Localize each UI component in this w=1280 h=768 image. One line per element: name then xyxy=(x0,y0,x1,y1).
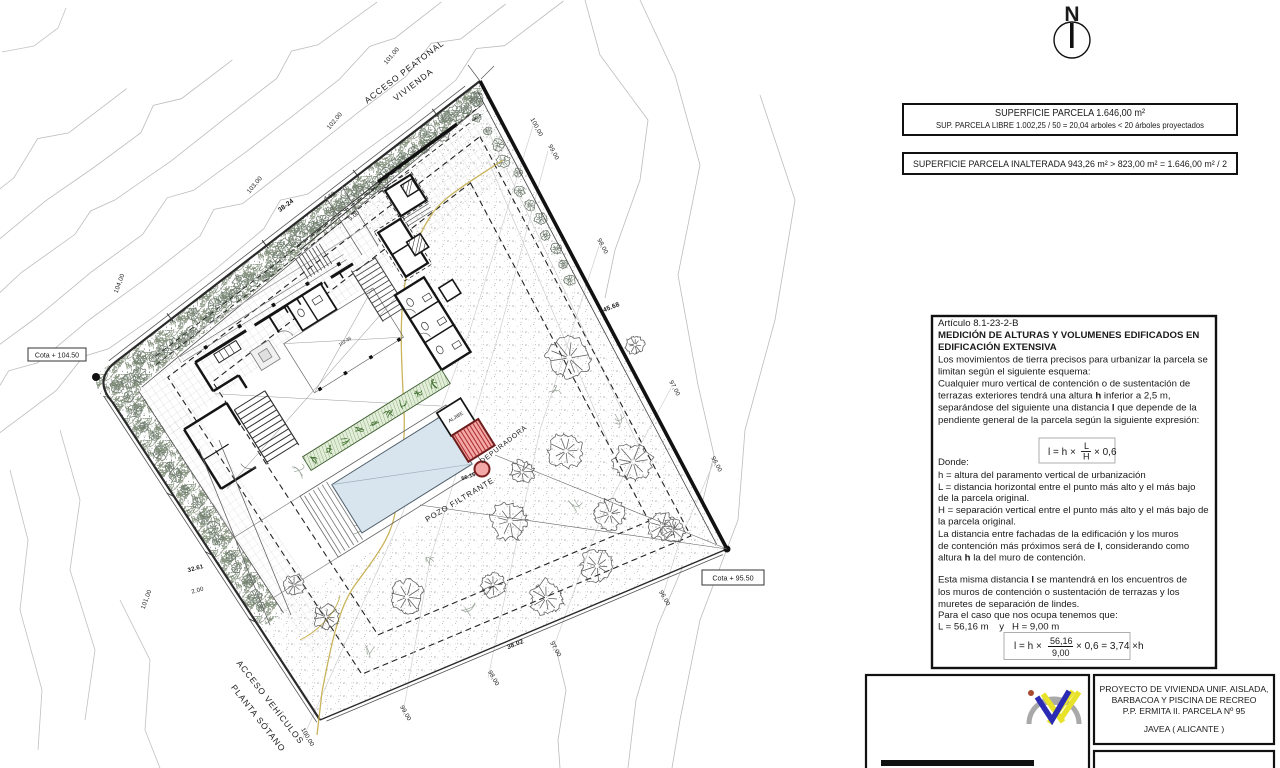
svg-text:N: N xyxy=(1064,3,1079,26)
svg-text:h = altura del paramento verti: h = altura del paramento vertical de urb… xyxy=(938,470,1146,481)
svg-text:de la parcela original.: de la parcela original. xyxy=(938,493,1029,504)
svg-text:los muros de contención o sust: los muros de contención o sustentación d… xyxy=(938,587,1180,598)
svg-text:l = h ×: l = h × xyxy=(1048,447,1076,458)
svg-text:56,16: 56,16 xyxy=(1050,636,1073,646)
svg-text:45.68: 45.68 xyxy=(602,301,621,314)
svg-text:97,00: 97,00 xyxy=(667,379,681,397)
svg-text:separándose del siguiente una: separándose del siguiente una distancia … xyxy=(938,403,1197,414)
svg-text:100,00: 100,00 xyxy=(529,117,545,138)
svg-text:9,00: 9,00 xyxy=(1052,648,1070,658)
svg-text:L: L xyxy=(1084,441,1089,451)
svg-text:38-24: 38-24 xyxy=(277,198,295,214)
svg-text:SUPERFICIE PARCELA 1.646,00 m²: SUPERFICIE PARCELA 1.646,00 m² xyxy=(995,108,1146,119)
svg-text:Cualquier muro vertical de con: Cualquier muro vertical de contención o … xyxy=(938,379,1190,390)
svg-text:97,00: 97,00 xyxy=(548,640,562,658)
svg-text:× 0,6 = 3,74 ×h: × 0,6 = 3,74 ×h xyxy=(1076,641,1144,652)
svg-text:muretes de separación de linde: muretes de separación de lindes. xyxy=(938,599,1079,610)
svg-text:98,00: 98,00 xyxy=(595,237,609,255)
svg-text:96,00: 96,00 xyxy=(657,589,671,607)
svg-text:Cota + 104.50: Cota + 104.50 xyxy=(35,353,79,360)
svg-text:× 0,6: × 0,6 xyxy=(1094,447,1117,458)
svg-text:SUPERFICIE PARCELA INALTERADA: SUPERFICIE PARCELA INALTERADA 943,26 m² … xyxy=(913,159,1227,170)
svg-text:pendiente general de la parcel: pendiente general de la parcela según la… xyxy=(938,415,1199,426)
svg-text:Esta misma distancia l se mant: Esta misma distancia l se mantendrá en l… xyxy=(938,575,1187,586)
svg-text:altura h la del muro de conten: altura h la del muro de contención. xyxy=(938,553,1086,564)
svg-text:102,00: 102,00 xyxy=(326,111,345,131)
svg-text:Cota + 95.50: Cota + 95.50 xyxy=(712,574,753,583)
svg-text:limitan según el siguiente esq: limitan según el siguiente esquema: xyxy=(938,366,1091,377)
svg-text:Artículo 8.1-23-2-B: Artículo 8.1-23-2-B xyxy=(938,318,1019,329)
svg-text:SUP. PARCELA LIBRE 1.002,25 /: SUP. PARCELA LIBRE 1.002,25 / 50 = 20,04… xyxy=(936,120,1204,130)
svg-text:H = separación vertical entre: H = separación vertical entre el punto m… xyxy=(938,505,1209,516)
svg-text:P.P. ERMITA II. PARCELA Nº 95: P.P. ERMITA II. PARCELA Nº 95 xyxy=(1123,706,1246,716)
svg-text:101,00: 101,00 xyxy=(140,589,154,611)
svg-text:101,00: 101,00 xyxy=(383,46,402,66)
svg-text:104,00: 104,00 xyxy=(113,273,127,295)
svg-text:2.00: 2.00 xyxy=(191,586,205,595)
svg-text:de contención más próximos ser: de contención más próximos será de l, co… xyxy=(938,541,1189,552)
svg-text:L = distancia horizontal entre: L = distancia horizontal entre el punto … xyxy=(938,482,1196,493)
svg-text:99,00: 99,00 xyxy=(546,143,560,161)
svg-text:PROYECTO DE VIVIENDA UNIF. AIS: PROYECTO DE VIVIENDA UNIF. AISLADA, xyxy=(1100,684,1269,694)
svg-text:Donde:: Donde: xyxy=(938,457,969,468)
svg-text:l = h ×: l = h × xyxy=(1014,641,1042,652)
svg-text:JAVEA ( ALICANTE ): JAVEA ( ALICANTE ) xyxy=(1144,724,1225,734)
svg-text:terrazas exteriores tendrá una: terrazas exteriores tendrá una altura h … xyxy=(938,391,1171,402)
svg-text:Los movimientos de tierra prec: Los movimientos de tierra precisos para … xyxy=(938,354,1208,365)
svg-text:99,00: 99,00 xyxy=(398,704,412,722)
svg-text:H: H xyxy=(1083,452,1090,462)
svg-text:103,00: 103,00 xyxy=(246,175,265,195)
svg-text:EDIFICACIÓN EXTENSIVA: EDIFICACIÓN EXTENSIVA xyxy=(938,341,1057,353)
svg-text:L = 56,16 m y H = 9,00 m: L = 56,16 m y H = 9,00 m xyxy=(938,622,1059,633)
svg-text:32.61: 32.61 xyxy=(187,564,204,574)
svg-text:Para el caso que nos ocupa ten: Para el caso que nos ocupa tenemos que: xyxy=(938,610,1118,621)
svg-text:La distancia entre fachadas de: La distancia entre fachadas de la edific… xyxy=(938,529,1179,540)
svg-text:la parcela original.: la parcela original. xyxy=(938,517,1016,528)
svg-text:98,00: 98,00 xyxy=(486,669,500,687)
svg-text:BARBACOA Y PISCINA DE RECREO: BARBACOA Y PISCINA DE RECREO xyxy=(1112,695,1257,705)
svg-text:MEDICIÓN DE ALTURAS Y VOLUMENE: MEDICIÓN DE ALTURAS Y VOLUMENES EDIFICAD… xyxy=(938,329,1199,341)
